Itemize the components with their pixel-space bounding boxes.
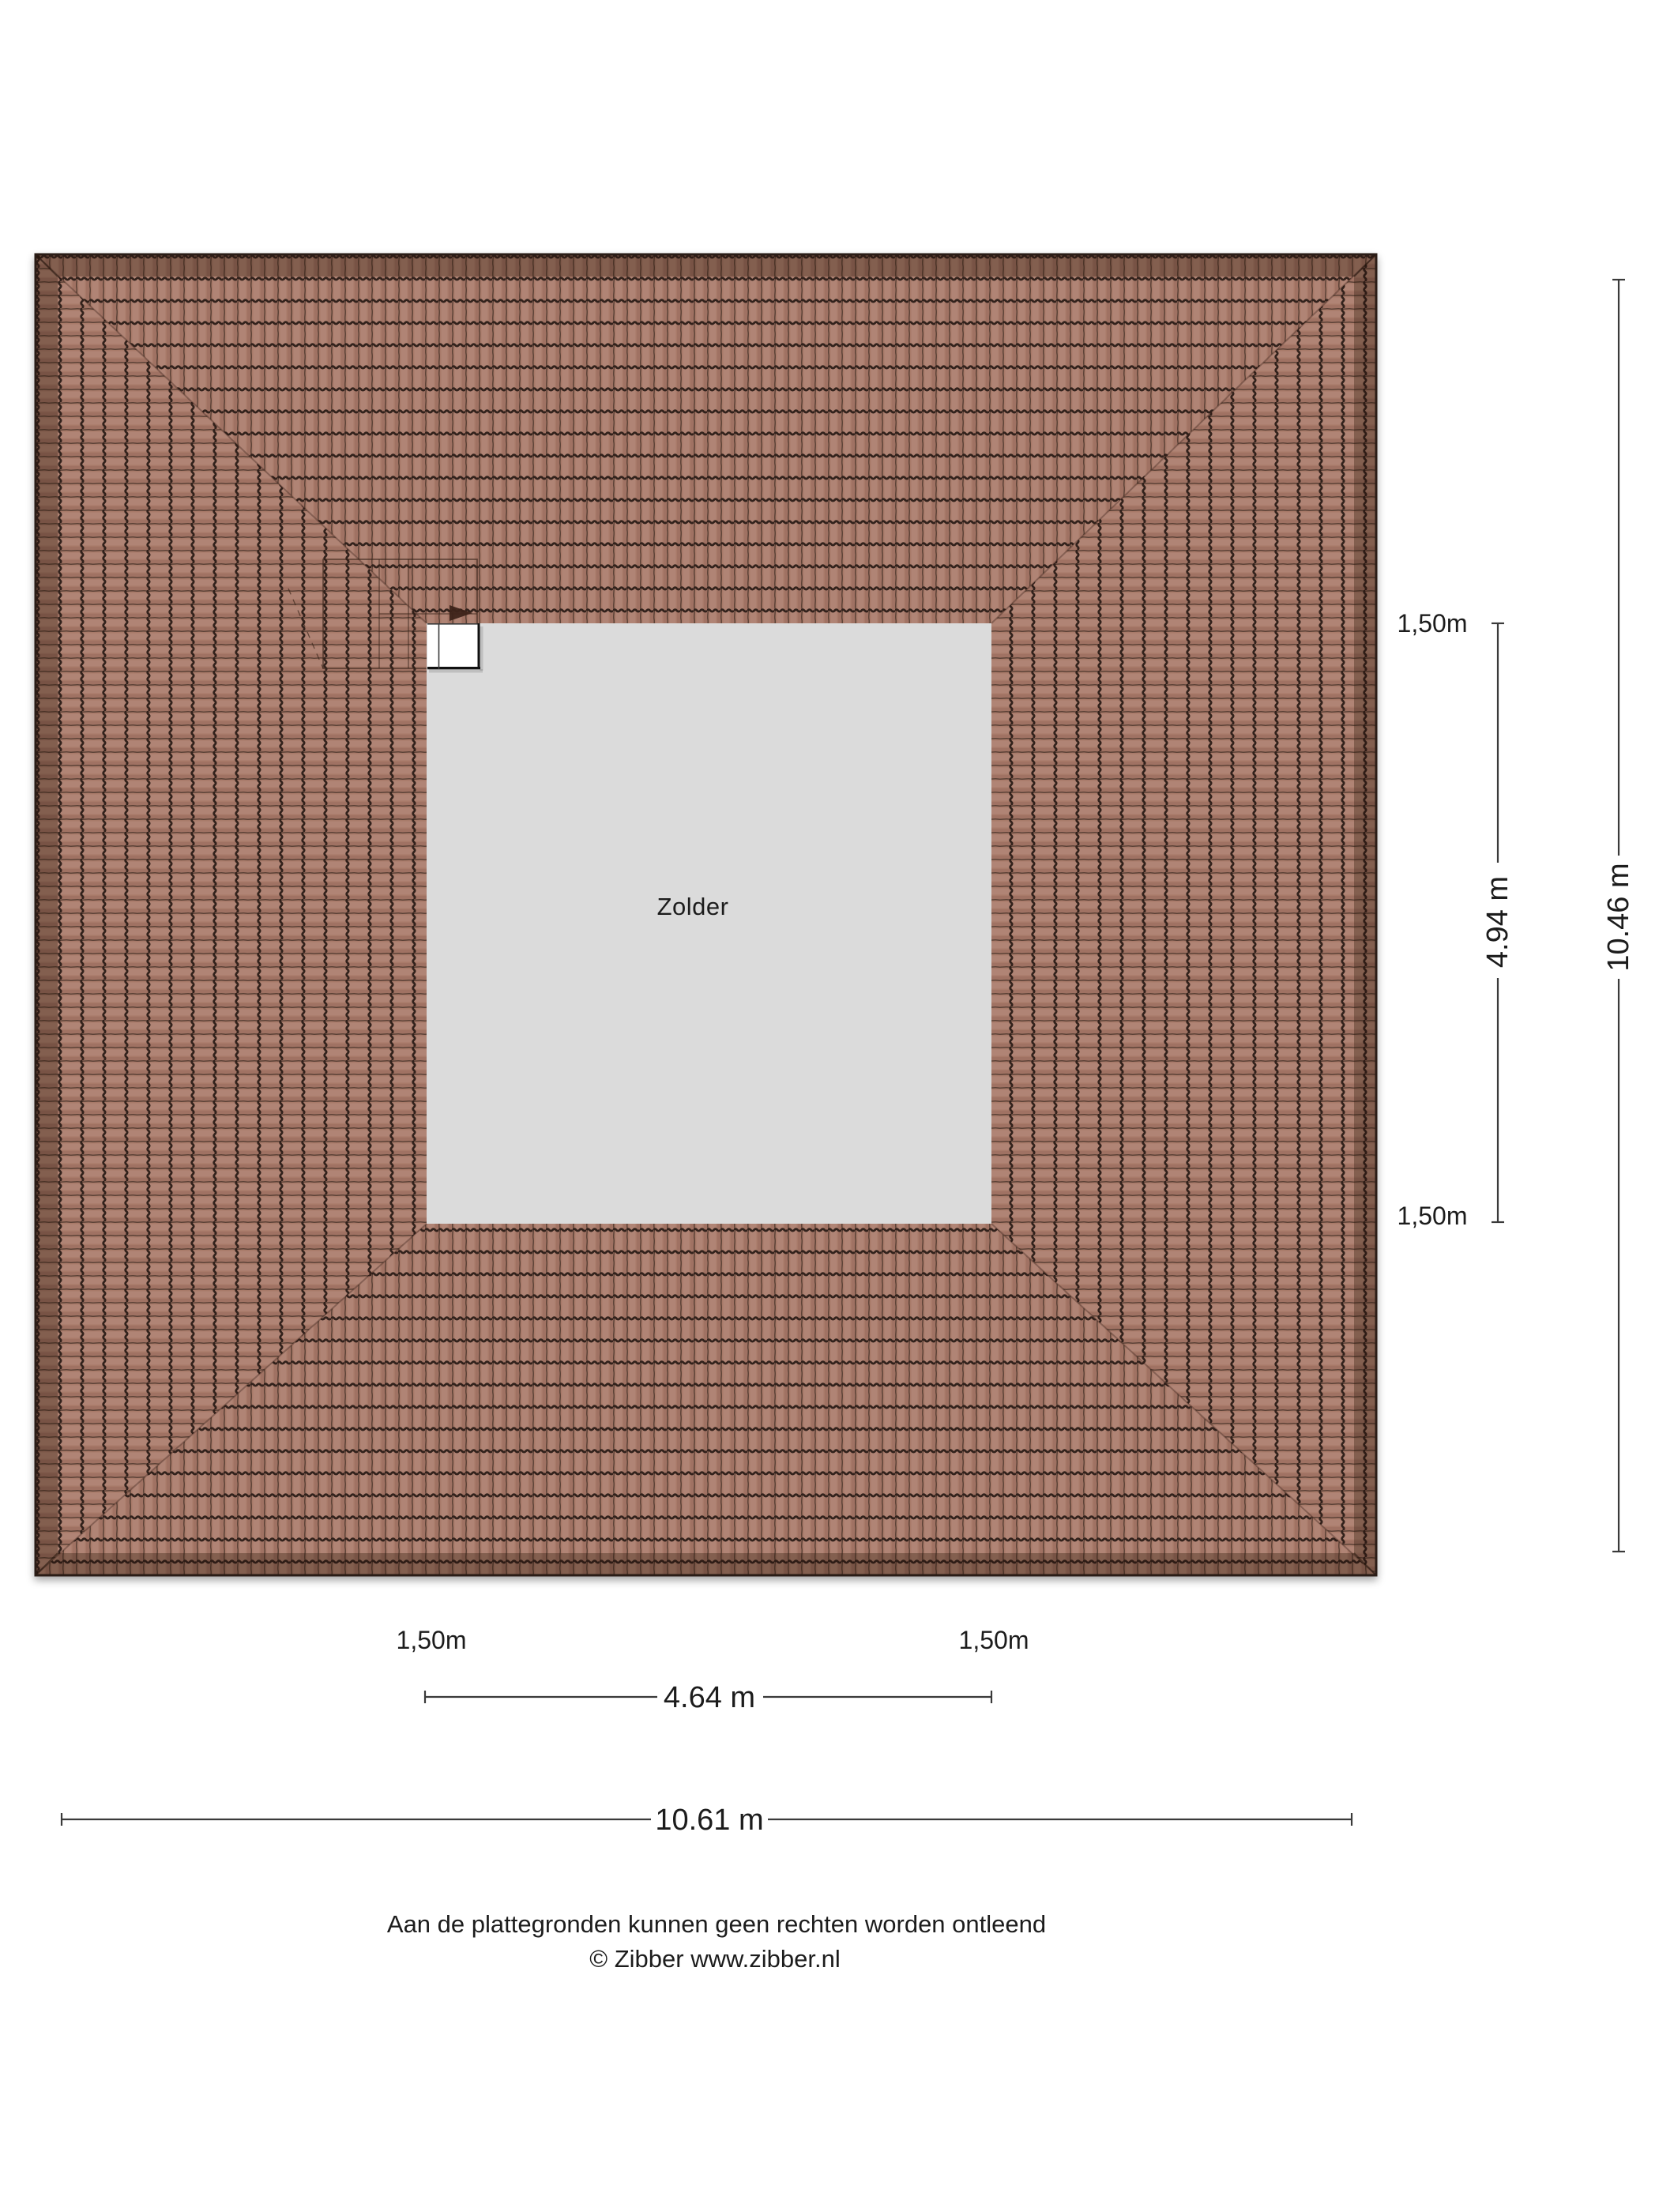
svg-text:© Zibber www.zibber.nl: © Zibber www.zibber.nl <box>589 1945 840 1973</box>
svg-text:Zolder: Zolder <box>657 893 729 920</box>
svg-text:1,50m: 1,50m <box>397 1626 467 1654</box>
svg-text:10.61 m: 10.61 m <box>655 1804 763 1837</box>
svg-text:4.94 m: 4.94 m <box>1481 876 1514 968</box>
svg-text:1,50m: 1,50m <box>959 1626 1029 1654</box>
svg-text:4.64 m: 4.64 m <box>664 1681 755 1714</box>
svg-text:Aan de plattegronden kunnen ge: Aan de plattegronden kunnen geen rechten… <box>387 1910 1046 1938</box>
svg-text:1,50m: 1,50m <box>1398 609 1468 638</box>
svg-text:1,50m: 1,50m <box>1398 1202 1468 1230</box>
svg-text:10.46 m: 10.46 m <box>1602 863 1635 971</box>
